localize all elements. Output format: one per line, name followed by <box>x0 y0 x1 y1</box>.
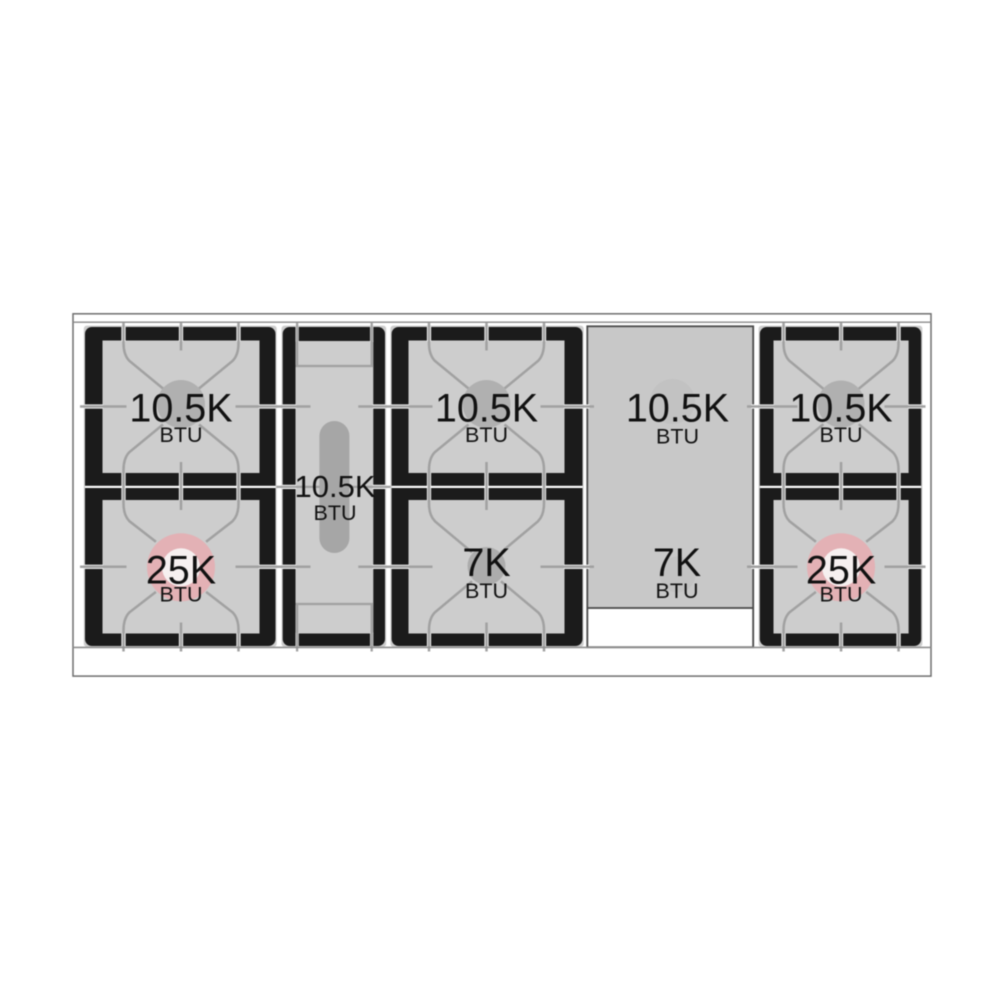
svg-text:BTU: BTU <box>314 501 357 525</box>
svg-text:BTU: BTU <box>820 423 863 447</box>
svg-text:BTU: BTU <box>160 423 203 447</box>
svg-text:BTU: BTU <box>656 579 699 603</box>
svg-text:BTU: BTU <box>465 423 508 447</box>
svg-text:BTU: BTU <box>820 583 863 607</box>
svg-text:BTU: BTU <box>465 579 508 603</box>
svg-text:10.5K: 10.5K <box>294 469 375 504</box>
svg-text:BTU: BTU <box>160 583 203 607</box>
svg-text:BTU: BTU <box>656 425 699 449</box>
